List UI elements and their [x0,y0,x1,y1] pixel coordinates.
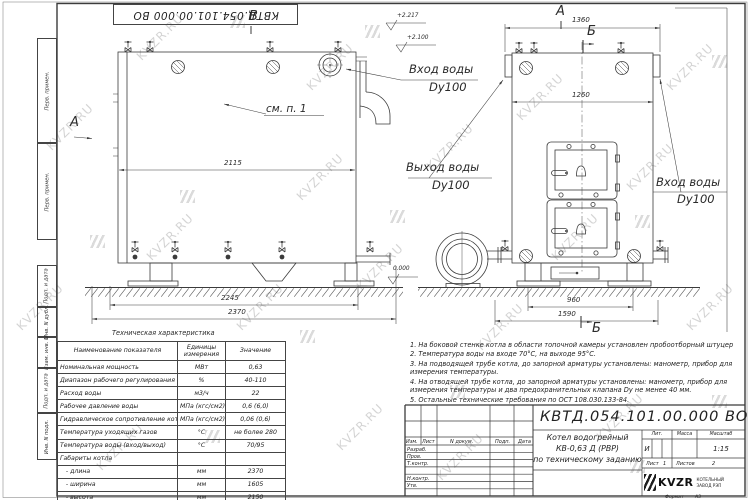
spec-value: 0,06 (0,6) [226,413,286,426]
spec-unit: м3/ч [178,387,226,400]
table-row: Диапазон рабочего регулирования%40-110 [58,374,286,387]
spec-name: Гидравлическое сопротивление котла [58,413,178,426]
spec-unit: мм [178,478,226,491]
margin-label: Инв. N дубл. [44,305,50,339]
rev-header-list: Лист [422,439,435,445]
spec-unit: МВт [178,361,226,374]
margin-label: Подп. и дата [44,373,50,408]
table-row: - длинамм2370 [58,465,286,478]
format-value: А3 [695,495,701,500]
rev-header-izm: Изм. [406,439,418,445]
dim-side-top: 2115 [224,160,242,167]
spec-header-name: Наименование показателя [58,342,178,361]
spec-value: 1605 [226,478,286,491]
spec-unit: °С [178,439,226,452]
dim-front-legs: 960 [567,297,580,304]
spec-unit: МПа (кгс/см2) [178,413,226,426]
margin-label: Взам. инв. N [44,336,50,370]
spec-value: не более 280 [226,426,286,439]
table-row: Рабочее давление водыМПа (кгс/см2)0,6 (6… [58,400,286,413]
spec-unit: мм [178,491,226,500]
spec-unit: % [178,374,226,387]
margin-label: Инв. N подл. [44,419,50,453]
see-note-callout: см. п. 1 [266,104,307,115]
margin-box-vzam-inv: Взам. инв. N [37,337,57,368]
dim-side-base: 2245 [221,295,239,302]
margin-label: Подп. и дата [44,268,50,303]
kvzr-logo-bars-icon [644,474,656,491]
lower-door [547,200,620,257]
spec-value [226,452,286,465]
table-row: Температура воды (вход/выход)°С70/95 [58,439,286,452]
company-logo: KVZR КОТЕЛЬНЫЙ ЗАВОД РЭП [644,470,744,495]
doc-title-line2: КВ-0,63 Д (РВР) [533,444,642,453]
elevation-mark-2217: +2.217 [397,14,418,20]
view-label-a-front: А [556,5,565,18]
scale-value: 1:15 [697,445,745,453]
margin-box-perv-primen-2: Перв. примен. [37,143,57,240]
mass-label: Масса [672,432,697,437]
doc-title-line1: Котел водогрейный [533,433,642,442]
row-label-tkontr: Т.контр. [407,461,429,467]
margin-box-podp-data-1: Подп. и дата [37,265,57,307]
dim-side-full: 2370 [228,309,246,316]
dim-front-top: 1360 [572,17,590,24]
callout-inlet-top-line2: Dy100 [429,82,467,94]
kvzr-logo-text: KVZR [658,476,693,489]
view-label-a-side: А [70,116,79,129]
table-row: Гидравлическое сопротивление котлаМПа (к… [58,413,286,426]
scale-label: Масштаб [697,432,745,437]
format-label: Формат [665,495,684,500]
margin-box-inv-podl: Инв. N подл. [37,413,57,460]
note-2: 2. Температура воды на входе 70°С, на вы… [410,350,746,358]
note-3: 3. На подводящей трубе котла, до запорно… [410,360,746,377]
titleblock-designation: КВТД.054.101.00.000 ВО [540,409,738,425]
lit-value: И [642,445,652,453]
sheets-label: Листов [676,461,695,467]
spec-unit: мм [178,465,226,478]
table-row: - ширинамм1605 [58,478,286,491]
view-label-b: В [249,10,258,23]
spec-header-row: Наименование показателя Единицы измерени… [58,342,286,361]
margin-box-podp-data-2: Подп. и дата [37,368,57,413]
note-1: 1. На боковой стенке котла в области топ… [410,341,746,349]
spec-value: 40-110 [226,374,286,387]
section-label-b-bottom: Б [592,322,601,335]
section-label-b-top: Б [587,25,596,38]
spec-header-unit: Единицы измерения [178,342,226,361]
dim-front-base: 1590 [558,311,576,318]
spec-value: 2370 [226,465,286,478]
spec-name: - ширина [58,478,178,491]
spec-name: Температура воды (вход/выход) [58,439,178,452]
top-stamp: КВТД.054.101.00.000 ВО [113,4,298,25]
side-view [85,41,403,296]
spec-unit: МПа (кгс/см2) [178,400,226,413]
spec-name: Номинальная мощность [58,361,178,374]
margin-label: Перв. примен. [44,71,50,110]
table-row: Расход водым3/ч22 [58,387,286,400]
spec-unit [178,452,226,465]
row-label-nkontr: Н.контр. [407,476,429,482]
rev-header-ndokum: N докум. [450,439,473,445]
row-label-prov: Пров. [407,454,422,460]
callout-outlet-mid-line2: Dy100 [432,180,470,192]
margin-box-perv-primen-1: Перв. примен. [37,38,57,143]
sheets-value: 2 [712,461,715,467]
table-row: Габариты котла [58,452,286,465]
callout-inlet-right-line1: Вход воды [656,177,720,189]
spec-name: Рабочее давление воды [58,400,178,413]
upper-door [547,142,620,199]
note-5: 5. Остальные технические требования по О… [410,396,746,404]
spec-name: Диапазон рабочего регулирования [58,374,178,387]
company-name: КОТЕЛЬНЫЙ ЗАВОД РЭП [696,477,723,487]
sheet-value: 1 [663,461,666,467]
callout-outlet-mid-line1: Выход воды [406,162,479,174]
spec-name: - высота [58,491,178,500]
sheet-label: Лист [646,461,659,467]
spec-table-title: Техническая характеристика [112,330,215,337]
spec-name: Габариты котла [58,452,178,465]
spec-value: 70/95 [226,439,286,452]
company-name-line1: КОТЕЛЬНЫЙ [696,477,723,482]
spec-table: Наименование показателя Единицы измерени… [57,341,286,500]
spec-name: - длина [58,465,178,478]
dim-front-inner: 1260 [572,92,590,99]
table-row: - высотамм2150 [58,491,286,500]
table-row: Номинальная мощностьМВт0,63 [58,361,286,374]
spec-header-value: Значение [226,342,286,361]
rev-header-podp: Подп. [495,439,510,445]
spec-value: 22 [226,387,286,400]
table-row: Температура уходящих газов°Сне более 280 [58,426,286,439]
row-label-utv: Утв. [407,483,418,489]
margin-label: Перв. примен. [44,172,50,211]
spec-value: 0,6 (6,0) [226,400,286,413]
callout-inlet-top-line1: Вход воды [409,64,473,76]
spec-name: Температура уходящих газов [58,426,178,439]
rev-header-data: Дата [518,439,531,445]
note-4: 4. На отводящей трубе котла, до запорной… [410,378,746,395]
elevation-mark-zero: 0.000 [393,267,410,273]
fan [436,231,488,288]
technical-notes: 1. На боковой стенке котла в области топ… [410,341,746,405]
doc-title-line3: по техническому заданию [533,455,642,464]
company-name-line2: ЗАВОД РЭП [696,483,723,488]
elevation-mark-2100: +2.100 [407,36,428,42]
spec-unit: °С [178,426,226,439]
callout-inlet-right-line2: Dy100 [677,194,715,206]
lit-label: Лит. [642,432,672,437]
spec-value: 0,63 [226,361,286,374]
spec-value: 2150 [226,491,286,500]
spec-name: Расход воды [58,387,178,400]
drawing-sheet: KVZR.RU KVZR.RU KVZR.RU KVZR.RU KVZR.RU … [0,0,750,500]
margin-box-inv-dubl: Инв. N дубл. [37,307,57,337]
row-label-razrab: Разраб. [407,447,427,453]
